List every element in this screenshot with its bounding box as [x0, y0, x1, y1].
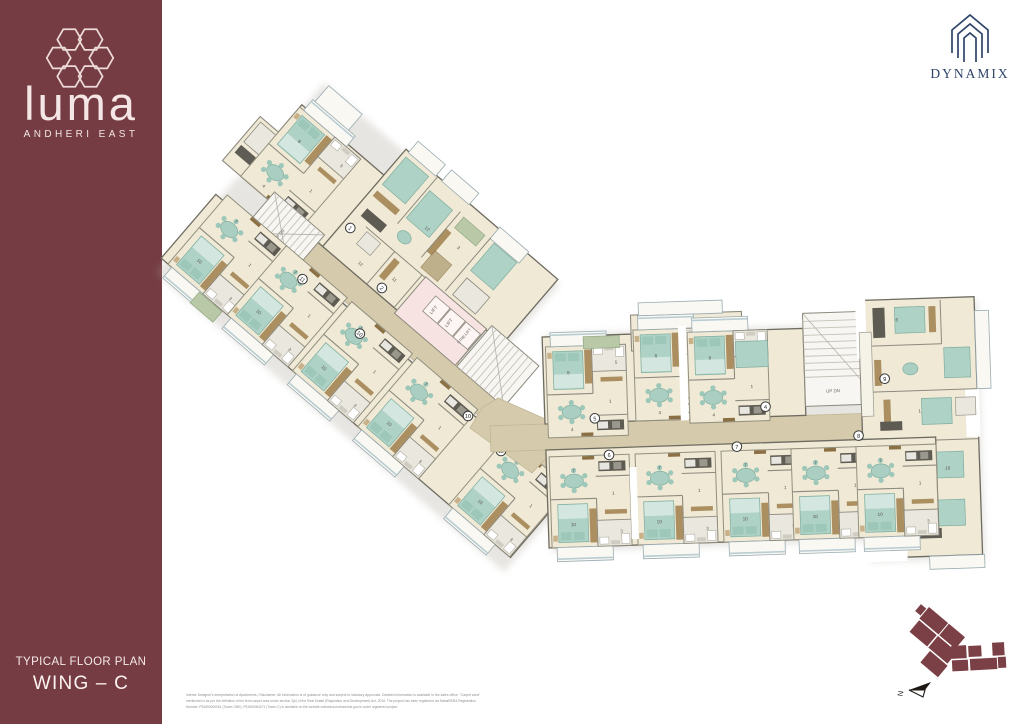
svg-text:ANDHERI EAST: ANDHERI EAST: [24, 129, 139, 140]
svg-text:mentioned is as per the defini: mentioned is as per the definition of th…: [186, 699, 476, 703]
svg-text:Interior Designer's interpreta: Interior Designer's interpretation of Ap…: [186, 693, 481, 697]
svg-text:luma: luma: [24, 77, 138, 130]
svg-text:8: 8: [857, 434, 860, 440]
svg-text:10: 10: [945, 466, 951, 471]
svg-text:5: 5: [593, 416, 596, 422]
svg-text:UP DN: UP DN: [826, 388, 840, 393]
svg-text:DYNAMIX: DYNAMIX: [930, 66, 1009, 81]
svg-text:7: 7: [735, 445, 738, 451]
svg-text:TYPICAL FLOOR PLAN: TYPICAL FLOOR PLAN: [16, 656, 147, 668]
svg-text:Number: P51800000061 (Tower-ON: Number: P51800000061 (Tower-ONE), P51800…: [186, 705, 398, 709]
svg-text:6: 6: [607, 453, 610, 459]
svg-text:9: 9: [883, 377, 886, 383]
svg-text:WING – C: WING – C: [33, 673, 129, 694]
svg-text:4: 4: [764, 405, 767, 411]
svg-text:10: 10: [465, 414, 471, 420]
